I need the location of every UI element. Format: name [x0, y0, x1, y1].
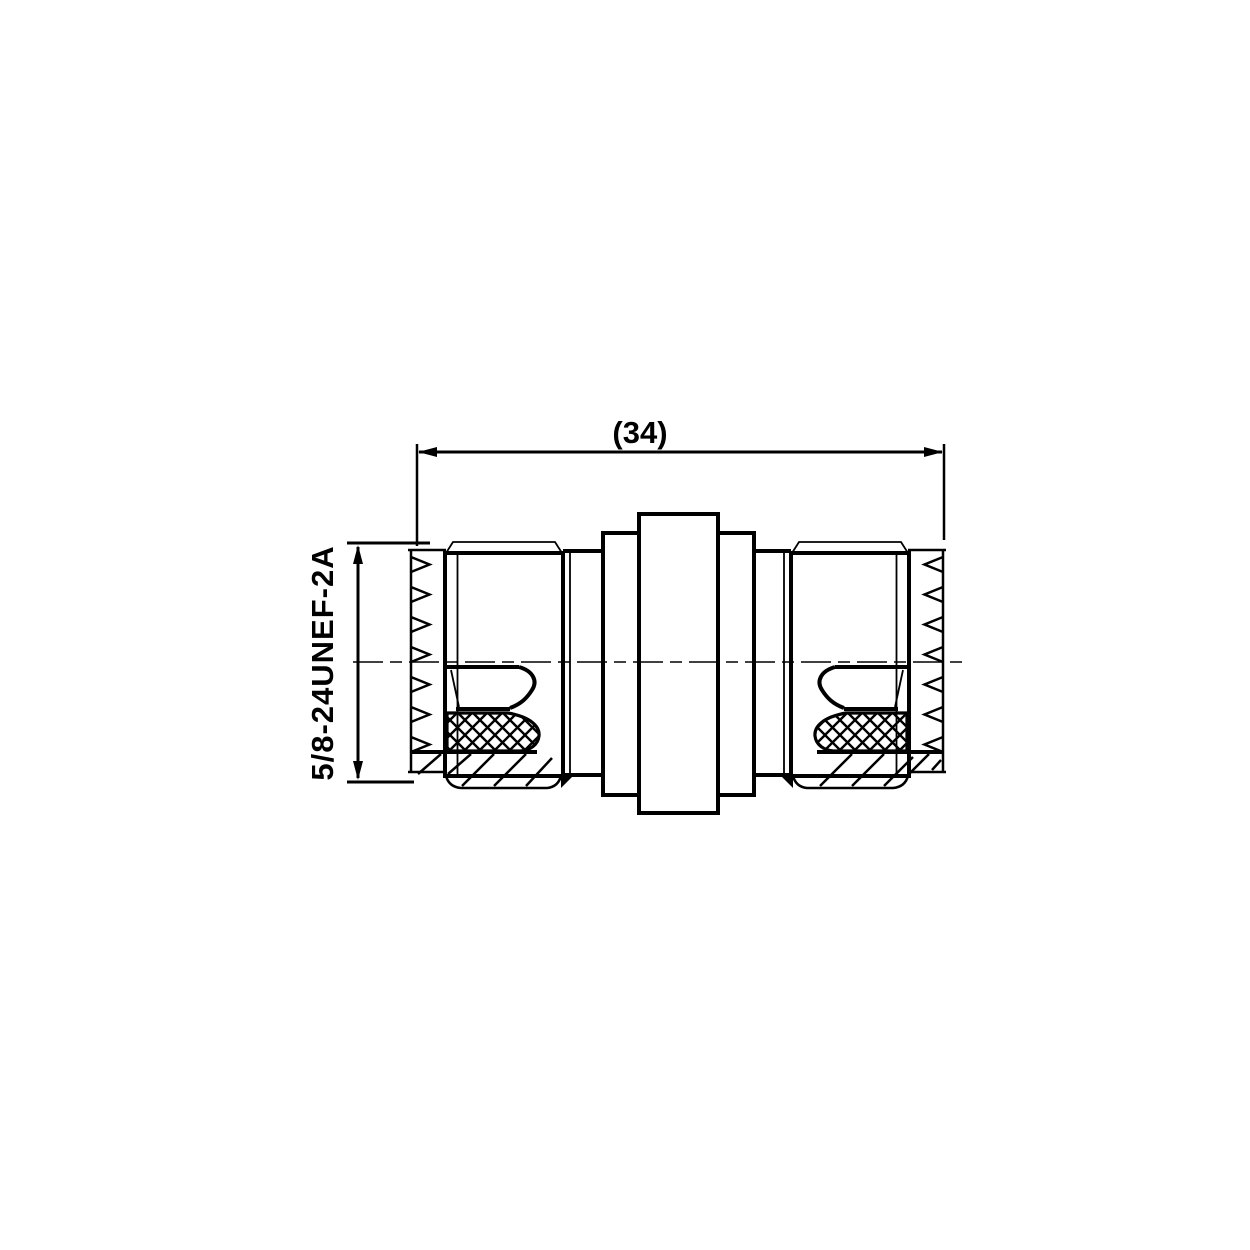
drawing-canvas: (34) 5/8-24UNEF-2A	[0, 0, 1250, 1250]
thread-spec-label: 5/8-24UNEF-2A	[305, 545, 340, 780]
right-insulator-hatch	[815, 713, 907, 751]
technical-drawing: (34) 5/8-24UNEF-2A	[0, 0, 1250, 1250]
left-insulator-hatch	[447, 713, 539, 751]
paper-background	[0, 0, 1250, 1250]
overall-length-label: (34)	[612, 415, 667, 450]
